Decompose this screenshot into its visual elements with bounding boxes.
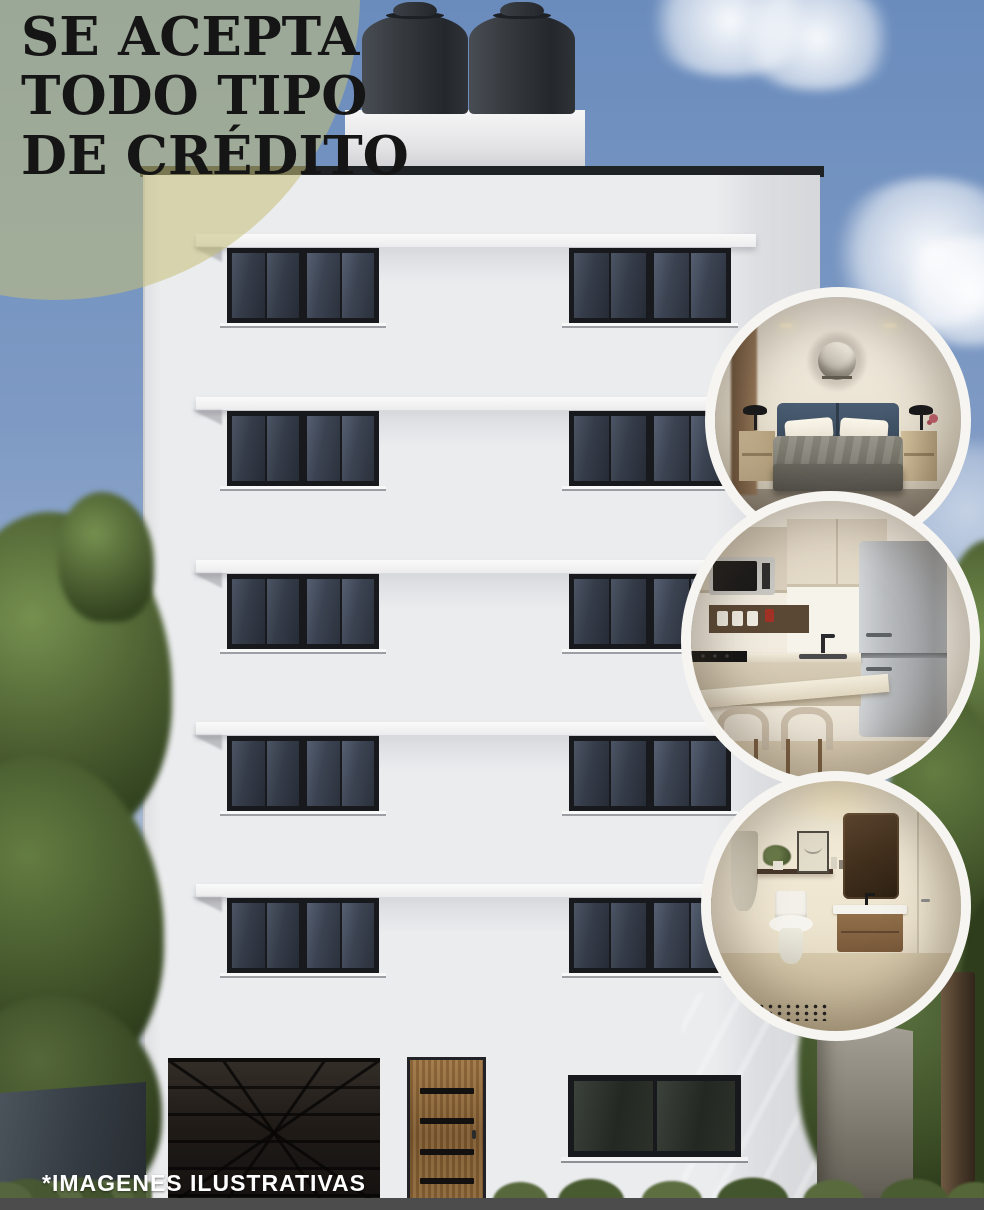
microwave [709,557,775,595]
window-sill [220,323,386,328]
ceiling-light [779,323,793,328]
window-ledge [196,560,756,573]
ground-floor-window [568,1075,741,1157]
headline: SE ACEPTA TODO TIPO DE CRÉDITO [21,8,409,186]
door-handle [472,1130,476,1139]
headline-line: TODO TIPO [21,67,409,126]
faucet [821,634,825,654]
towel [731,831,758,911]
window-sill [220,811,386,816]
window-sill [220,649,386,654]
pillow [839,417,888,441]
countertop [691,653,861,662]
bed-foot [773,464,903,491]
window-sill [562,323,738,328]
window [227,411,379,486]
facade-recess-shadow [379,897,569,933]
entry-door-panel [410,1060,483,1198]
kitchen-photo-circle [681,491,980,790]
disclaimer-text: *IMAGENES ILUSTRATIVAS [42,1170,366,1197]
window-sill [562,486,738,491]
lower-cabinet [691,662,861,706]
vanity-counter [833,905,907,914]
window-sill [220,973,386,978]
stove [691,651,747,662]
vanity-mirror [843,813,899,899]
headline-line: SE ACEPTA [21,8,409,67]
pillow [784,417,834,442]
wall-shelf [757,869,833,874]
plant [763,845,791,866]
facade-recess-shadow [379,735,569,771]
open-shelf [709,605,809,633]
facade-recess-shadow [379,247,569,283]
footer-bar [0,1198,984,1210]
window-ledge [196,234,756,247]
window-ledge [196,722,756,735]
round-mirror [818,342,856,380]
faucet [865,893,868,906]
bed-headboard [777,403,899,445]
bathroom-photo-circle [701,771,971,1041]
window [227,736,379,811]
window [227,248,379,323]
table-lamp [743,405,767,431]
ceiling-light [883,323,897,328]
headline-line: DE CRÉDITO [21,127,409,186]
window [569,248,731,323]
entry-door [407,1057,486,1198]
bar-stool [777,707,823,777]
window-sill [220,486,386,491]
sink [799,654,847,659]
bathroom-photo [711,781,961,1031]
bar-stool [713,707,759,777]
real-estate-flyer: SE ACEPTA TODO TIPO DE CRÉDITO [0,0,984,1210]
shrubs [480,1156,984,1202]
dotted-mat [757,1003,831,1021]
window-ledge [196,884,756,897]
bar-counter [691,674,889,710]
nightstand [739,431,775,481]
window [227,898,379,973]
nightstand [901,431,937,481]
refrigerator [859,541,947,737]
door-handle [921,899,930,902]
vanity-cabinet [837,914,903,952]
facade-recess-shadow [379,410,569,446]
kitchen-photo [691,501,970,780]
flowers [929,414,938,423]
facade-recess-shadow [379,573,569,609]
table-lamp [909,405,933,431]
water-tank [467,2,577,114]
bed-blanket [773,436,903,470]
toilet-seat [769,915,813,933]
window-ledge [196,397,756,410]
toilet-tank [775,891,807,919]
upper-cabinet [787,519,887,587]
picture-frame [797,831,829,873]
window [227,574,379,649]
toilet-base [779,928,803,964]
